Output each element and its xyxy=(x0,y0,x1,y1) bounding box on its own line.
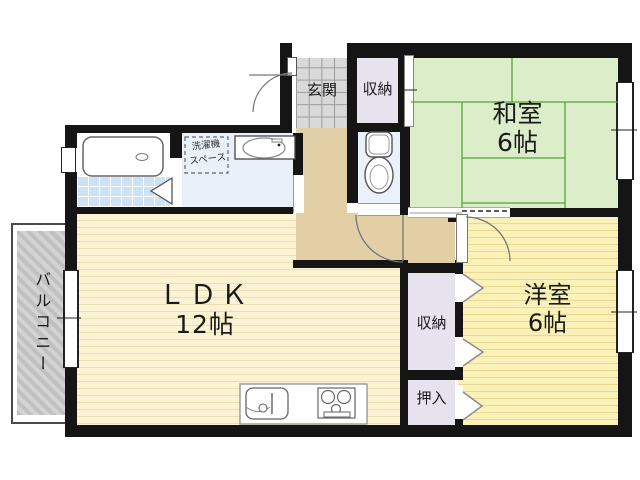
washitsu-name: 和室 xyxy=(455,100,580,129)
ldk-balcony-window xyxy=(63,270,79,368)
floor-plan: 和室 6帖 ＬＤＫ 12帖 洋室 6帖 玄関 収納 収納 押入 バルコニー 洗濯… xyxy=(0,0,640,480)
washitsu-label: 和室 6帖 xyxy=(455,100,580,158)
yoshitsu-window xyxy=(616,270,634,353)
yoshitsu-size: 6帖 xyxy=(480,310,615,338)
wall-closet-east-4 xyxy=(455,419,463,425)
washroom-door-opening xyxy=(293,175,304,213)
toilet-door-opening xyxy=(358,203,400,216)
storage-top-door xyxy=(404,55,414,127)
wall-north xyxy=(347,43,632,58)
storage-mid-door-gap-1 xyxy=(455,274,463,302)
wall-storage-oshiire-divider xyxy=(400,370,463,380)
wall-toilet-east xyxy=(400,125,410,215)
wall-closet-east-2 xyxy=(455,302,463,337)
yoshitsu-door-panel xyxy=(456,214,468,263)
bathroom-tile xyxy=(77,176,170,207)
wall-west-3 xyxy=(65,368,77,437)
washitsu-size: 6帖 xyxy=(455,129,580,158)
wall-storage-top-south xyxy=(347,123,405,132)
storage-mid-label: 収納 xyxy=(408,315,455,332)
wall-toilet-west xyxy=(347,132,358,203)
wall-hall-ldk xyxy=(293,260,408,268)
wall-east-2 xyxy=(618,180,632,270)
wall-storage-mid-north xyxy=(400,263,458,273)
balcony-label: バルコニー xyxy=(17,231,65,415)
ldk-size: 12帖 xyxy=(95,311,315,340)
ldk-label: ＬＤＫ 12帖 xyxy=(95,280,315,340)
wall-wash-east xyxy=(293,133,303,175)
wall-ldk-closet-divider xyxy=(400,263,408,425)
storage-top-label: 収納 xyxy=(355,81,400,98)
bathroom-window xyxy=(61,147,76,173)
wall-wash-south xyxy=(65,207,293,214)
wall-bath-wash-divider xyxy=(170,133,182,158)
entry-door-panel xyxy=(287,57,297,76)
wall-west-2 xyxy=(65,172,77,270)
wall-south xyxy=(65,425,632,437)
wall-washitsu-south xyxy=(510,208,618,217)
yoshitsu-label: 洋室 6帖 xyxy=(480,282,615,337)
oshiire-label: 押入 xyxy=(408,390,455,407)
genkan-label: 玄関 xyxy=(298,82,346,99)
wall-east-1 xyxy=(618,43,632,82)
toilet-floor xyxy=(358,132,400,203)
oshiire-door-gap xyxy=(455,385,463,419)
wall-closet-east-3 xyxy=(455,367,463,380)
washitsu-window xyxy=(616,82,634,180)
ldk-name: ＬＤＫ xyxy=(95,280,315,311)
entry-door-opening xyxy=(292,43,347,58)
hallway-floor-wide xyxy=(347,213,455,263)
yoshitsu-name: 洋室 xyxy=(480,282,615,310)
storage-mid-door-gap-2 xyxy=(455,337,463,367)
laundry-space-label: 洗濯機 スペース xyxy=(182,136,231,170)
wall-bath-north xyxy=(65,125,292,133)
